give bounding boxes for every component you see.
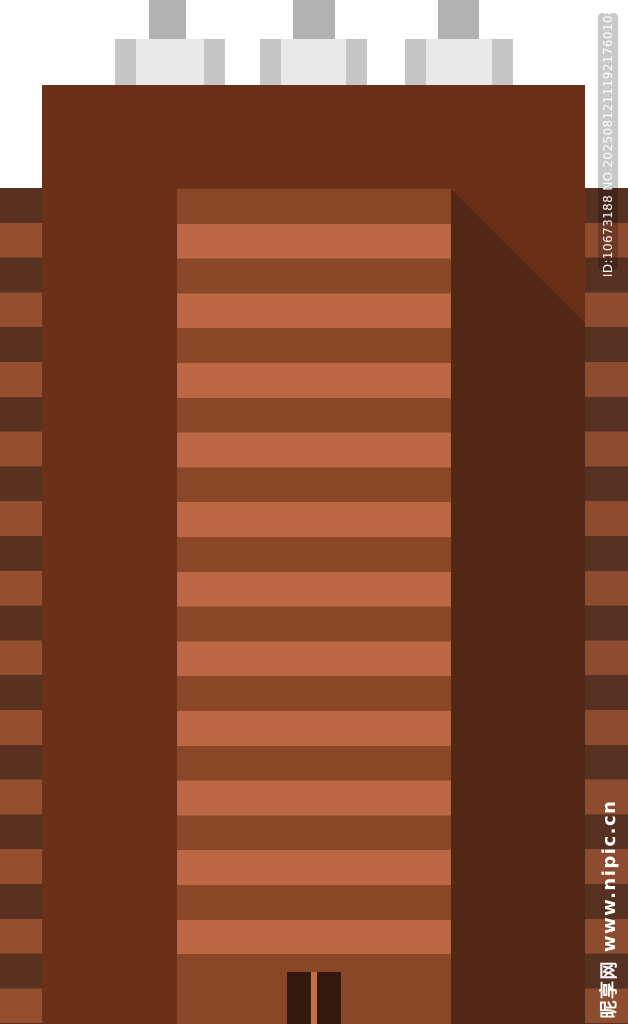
chimney-middle-base — [260, 39, 367, 86]
watermark-id-strip: ID:10673188 NO.20250812111921760108 — [598, 13, 618, 270]
chimney-base-center — [136, 39, 204, 86]
chimney-middle-pipe — [293, 0, 335, 40]
chimney-base-cap-left — [260, 39, 281, 86]
chimney-right-pipe — [438, 0, 479, 40]
chimney-base-cap-right — [492, 39, 513, 86]
watermark-site-text: 昵享网 www.nipic.cn — [595, 800, 621, 1019]
building-base-band — [177, 954, 451, 1024]
building-shadow — [451, 189, 585, 1024]
chimney-base-cap-right — [204, 39, 225, 86]
chimney-base-cap-left — [405, 39, 426, 86]
chimney-left-base — [115, 39, 225, 86]
watermark-site: 昵享网 www.nipic.cn — [595, 794, 621, 1024]
chimney-base-center — [281, 39, 346, 86]
chimney-base-center — [426, 39, 492, 86]
watermark-id-text: ID:10673188 NO.20250812111921760108 — [601, 6, 615, 276]
window-stripes-panel — [177, 189, 451, 954]
chimney-base-cap-left — [115, 39, 136, 86]
building-left-wing-stripes — [0, 188, 42, 1024]
door-left-panel — [287, 972, 311, 1024]
illustration-canvas: ID:10673188 NO.20250812111921760108 昵享网 … — [0, 0, 628, 1024]
chimney-left-pipe — [149, 0, 186, 40]
chimney-right-base — [405, 39, 513, 86]
chimney-base-cap-right — [346, 39, 367, 86]
door-right-panel — [317, 972, 341, 1024]
